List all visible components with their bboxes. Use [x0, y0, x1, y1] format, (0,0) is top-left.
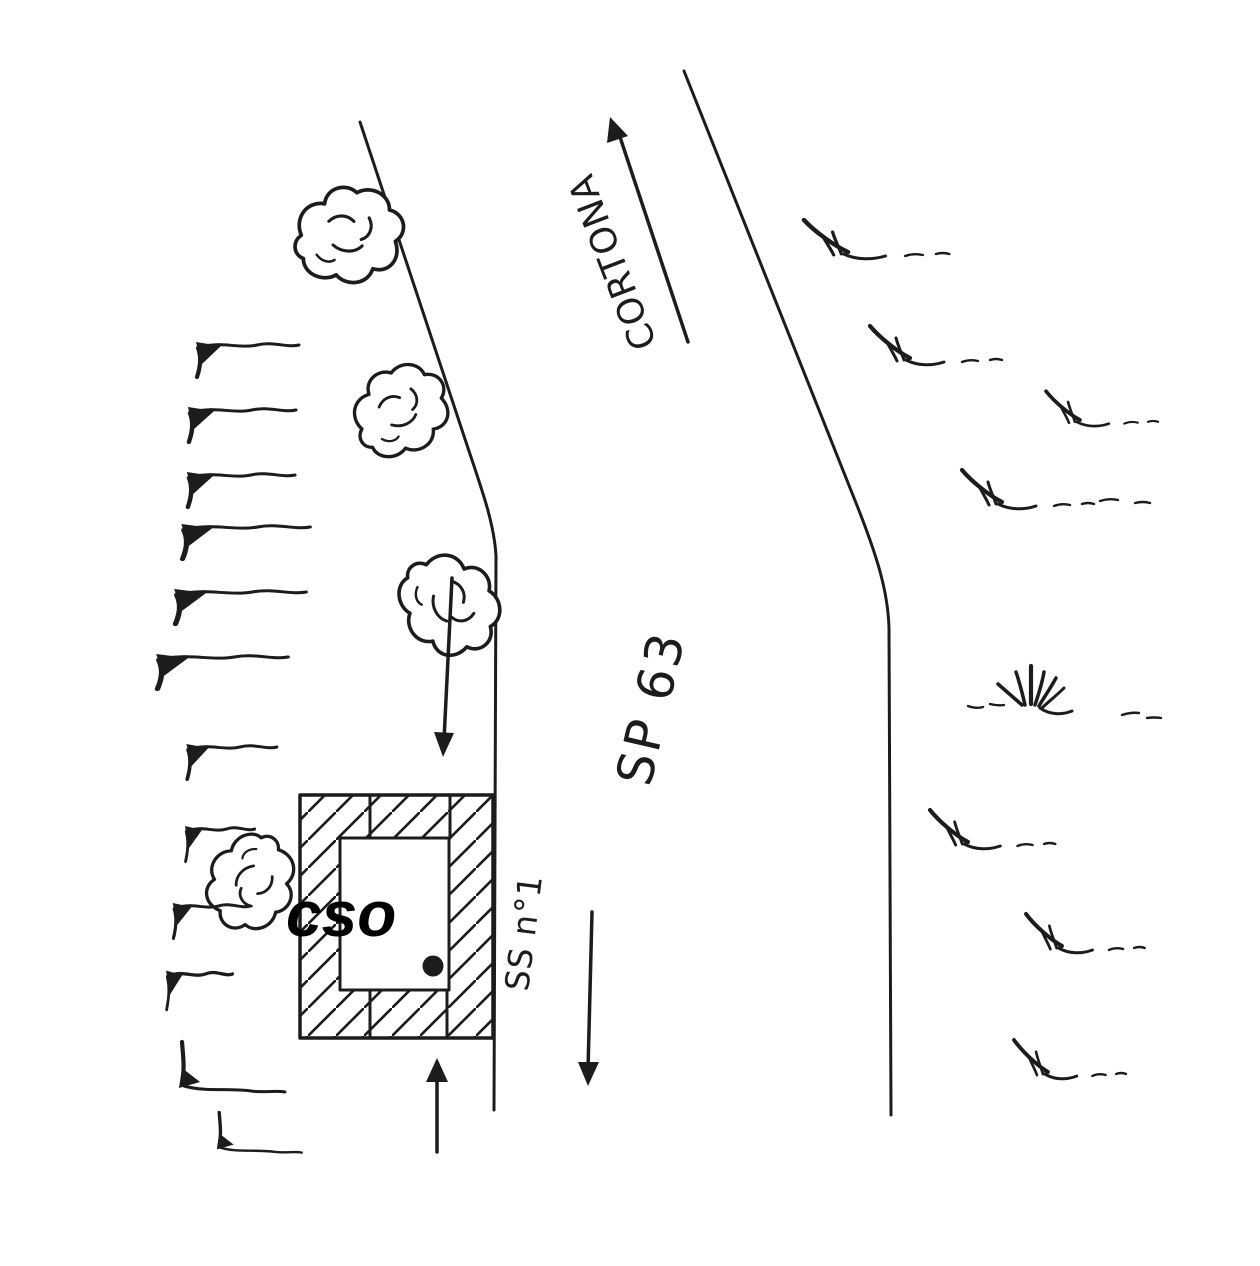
terrace-mark	[181, 524, 310, 559]
grass-tuft	[1046, 391, 1158, 426]
grass-tuft	[1026, 914, 1145, 953]
terrace-mark	[174, 589, 306, 624]
terrace-mark	[186, 744, 277, 779]
building-label-cso: cso	[286, 878, 396, 950]
grass-tuft	[804, 220, 949, 259]
tree	[345, 356, 458, 463]
terrace-mark	[188, 407, 296, 442]
cortona-label: CORTONA	[561, 168, 665, 355]
hand-drawn-site-sketch: CORTONA SP 63 SS n°1 cso	[0, 0, 1260, 1266]
road-label-ss1: SS n°1	[497, 872, 550, 993]
grass-dashes	[1100, 499, 1150, 503]
terrace-mark	[217, 1113, 302, 1153]
tree	[290, 179, 409, 290]
road-right-edge	[684, 71, 891, 1115]
terrace-mark	[179, 1042, 285, 1092]
survey-point-dot	[423, 956, 444, 977]
terrace-mark	[166, 971, 233, 1010]
grass-tufts	[804, 220, 1161, 1079]
grass-tuft	[1014, 1040, 1126, 1079]
grass-tuft	[930, 810, 1055, 849]
terrace-mark	[156, 654, 288, 689]
field-terrace-marks	[156, 342, 310, 1153]
grass-tuft	[870, 326, 1002, 365]
road-label-sp63: SP 63	[605, 625, 697, 790]
terrace-mark	[196, 342, 299, 377]
terrace-mark	[187, 472, 295, 507]
entrance-pointer-arrow	[426, 1058, 448, 1152]
ss1-direction-arrow	[578, 912, 599, 1086]
grass-tuft	[962, 470, 1094, 509]
grass-tuft-fan	[968, 666, 1161, 718]
